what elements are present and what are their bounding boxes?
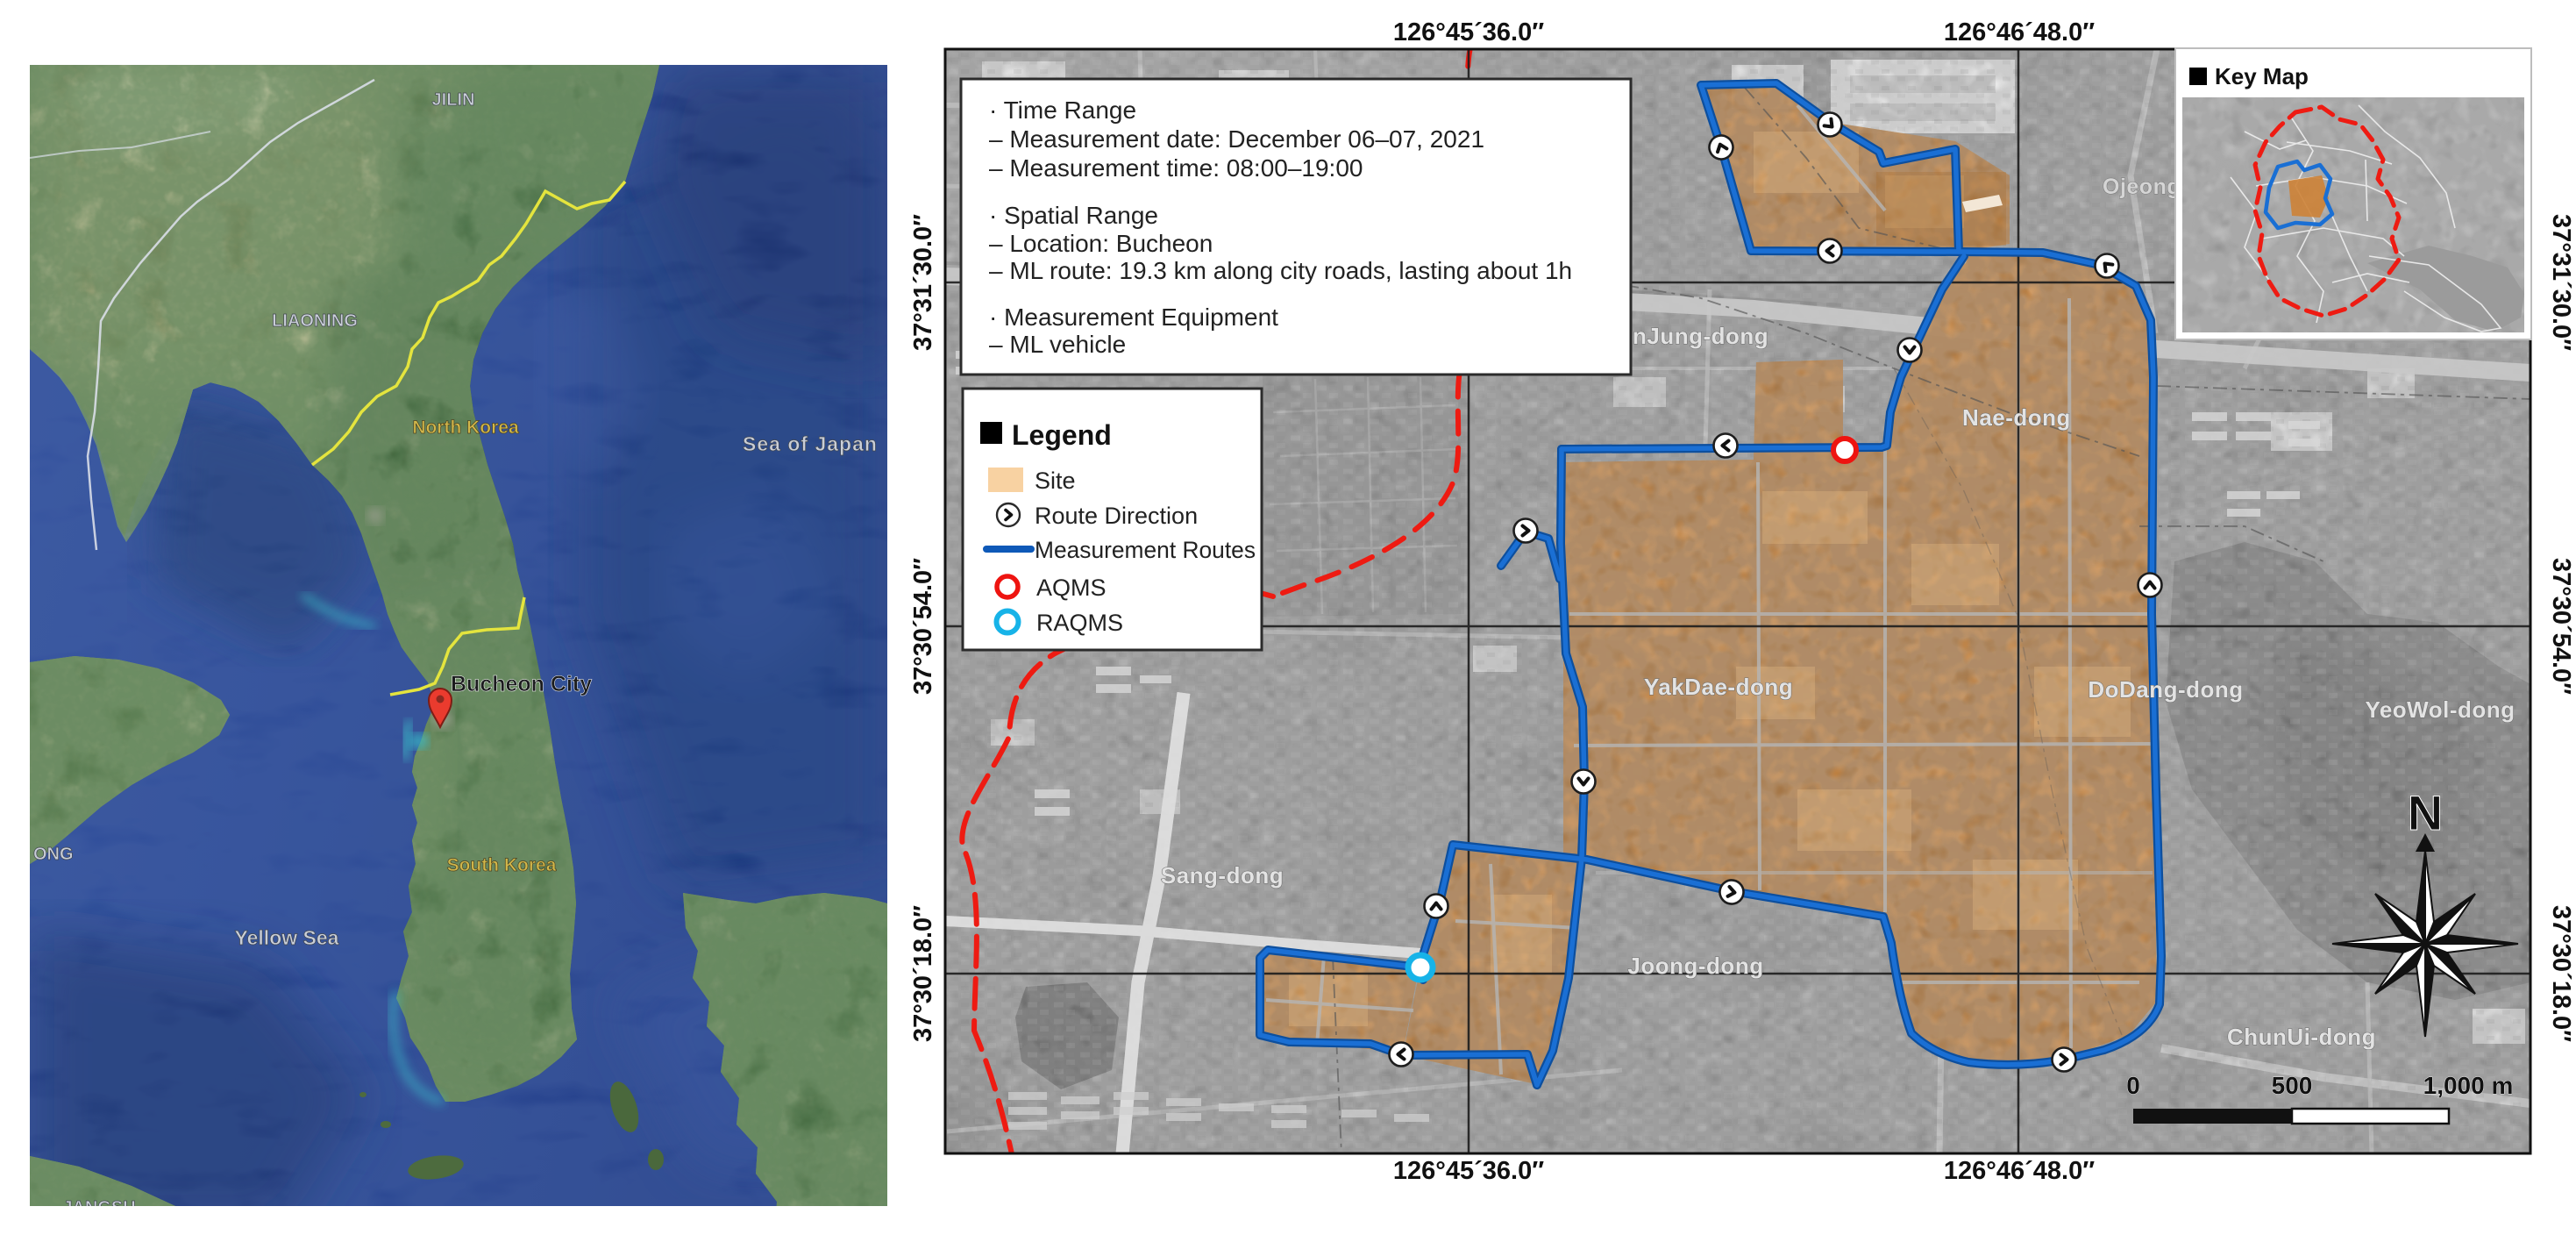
svg-text:RAQMS: RAQMS [1036, 610, 1123, 636]
svg-text:Bucheon City: Bucheon City [451, 672, 592, 696]
svg-text:N: N [2408, 785, 2443, 840]
svg-text:1,000 m: 1,000 m [2423, 1072, 2514, 1099]
svg-text:37°31´30.0″: 37°31´30.0″ [909, 214, 937, 351]
svg-text:126°45´36.0″: 126°45´36.0″ [1393, 18, 1544, 46]
svg-text:ONG: ONG [33, 845, 74, 864]
svg-text:Ojeong: Ojeong [2103, 175, 2181, 199]
svg-text:JILIN: JILIN [432, 90, 475, 110]
svg-text:Sang-dong: Sang-dong [1161, 862, 1284, 889]
svg-text:North Korea: North Korea [412, 418, 519, 438]
svg-text:Legend: Legend [1012, 419, 1112, 451]
svg-text:37°31´30.0″: 37°31´30.0″ [2547, 214, 2575, 351]
svg-text:Sea of Japan: Sea of Japan [743, 432, 878, 455]
svg-text:37°30´54.0″: 37°30´54.0″ [909, 558, 937, 695]
svg-text:· Time Range: · Time Range [989, 96, 1136, 124]
svg-text:126°46´48.0″: 126°46´48.0″ [1944, 18, 2095, 46]
svg-text:37°30´18.0″: 37°30´18.0″ [2547, 905, 2575, 1042]
svg-text:Measurement Routes: Measurement Routes [1035, 537, 1256, 563]
svg-text:· Spatial Range: · Spatial Range [989, 202, 1158, 229]
svg-text:Site: Site [1035, 468, 1076, 494]
svg-text:– ML route: 19.3 km along city: – ML route: 19.3 km along city roads, la… [989, 257, 1572, 284]
svg-text:AQMS: AQMS [1036, 575, 1107, 601]
svg-text:37°30´18.0″: 37°30´18.0″ [909, 905, 937, 1042]
svg-text:YakDae-dong: YakDae-dong [1644, 674, 1793, 700]
svg-text:0: 0 [2126, 1072, 2140, 1099]
svg-text:JANGSU: JANGSU [62, 1198, 135, 1217]
svg-text:Nae-dong: Nae-dong [1962, 404, 2071, 431]
svg-text:– Measurement time: 08:00–19:0: – Measurement time: 08:00–19:00 [989, 154, 1363, 182]
svg-text:· Measurement Equipment: · Measurement Equipment [989, 303, 1278, 331]
svg-text:500: 500 [2272, 1072, 2313, 1099]
svg-text:126°46´48.0″: 126°46´48.0″ [1944, 1157, 2095, 1185]
svg-text:South Korea: South Korea [447, 855, 557, 875]
svg-text:37°30´54.0″: 37°30´54.0″ [2547, 558, 2575, 695]
svg-text:ChunUi-dong: ChunUi-dong [2227, 1024, 2376, 1050]
svg-text:LIAONING: LIAONING [272, 311, 358, 331]
svg-text:– ML vehicle: – ML vehicle [989, 331, 1126, 358]
svg-text:126°45´36.0″: 126°45´36.0″ [1393, 1157, 1544, 1185]
svg-text:nJung-dong: nJung-dong [1633, 323, 1768, 349]
svg-text:Yellow Sea: Yellow Sea [235, 926, 339, 949]
svg-text:– Measurement date: December 0: – Measurement date: December 06–07, 2021 [989, 125, 1484, 153]
svg-text:YeoWol-dong: YeoWol-dong [2365, 696, 2515, 723]
svg-text:Key Map: Key Map [2215, 63, 2309, 89]
svg-text:Joong-dong: Joong-dong [1627, 953, 1763, 979]
svg-text:DoDang-dong: DoDang-dong [2088, 676, 2243, 703]
svg-text:– Location: Bucheon: – Location: Bucheon [989, 230, 1213, 257]
svg-text:Route Direction: Route Direction [1035, 503, 1198, 529]
